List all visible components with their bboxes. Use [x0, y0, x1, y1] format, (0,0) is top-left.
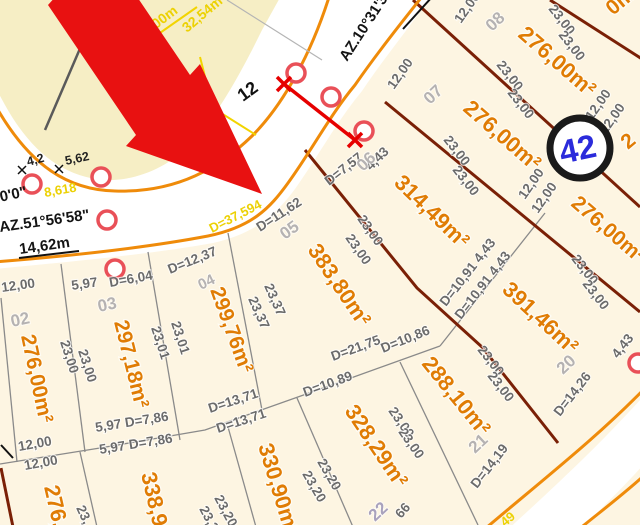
survey-ring [92, 168, 110, 186]
map-canvas: 12,00 5,97 D=6,04 D=12,37 D=11,62 D=7,57… [0, 0, 640, 525]
survey-ring [98, 211, 116, 229]
cadastral-map-screenshot: 12,00 5,97 D=6,04 D=12,37 D=11,62 D=7,57… [0, 0, 640, 525]
survey-ring [322, 88, 340, 106]
lot-number: 03 [96, 293, 118, 316]
survey-ring [629, 354, 640, 372]
lot-number: 02 [9, 308, 31, 331]
block-badge: 42 [550, 118, 610, 178]
block-number: 42 [556, 127, 600, 171]
